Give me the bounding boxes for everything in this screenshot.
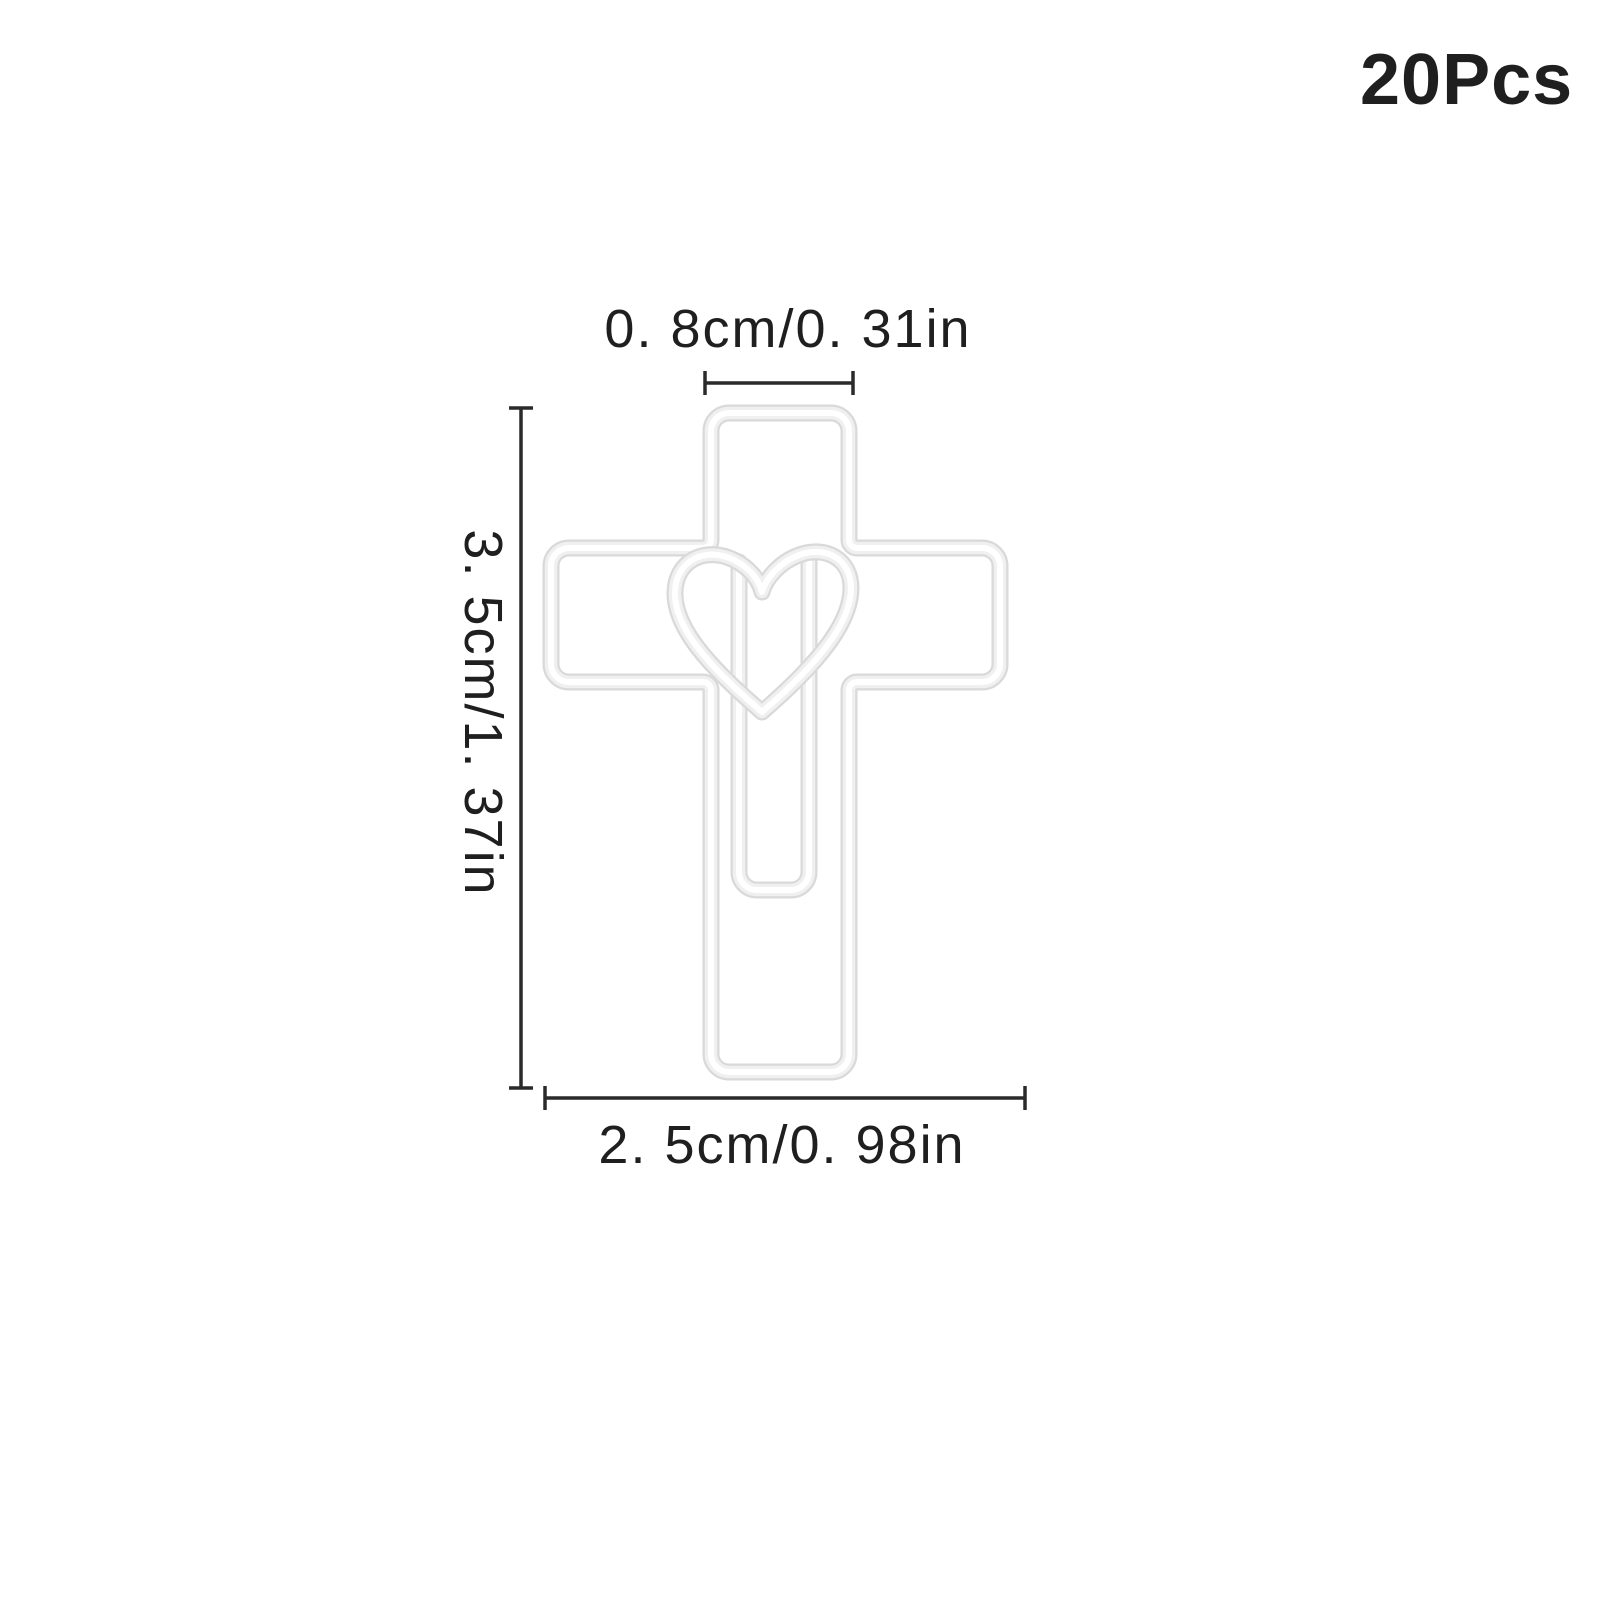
inner-loop-wire [739,562,809,890]
quantity-badge: 20Pcs [1360,44,1573,116]
cross-outline-wire [551,413,1000,1072]
dimension-label-top-width: 0. 8cm/0. 31in [488,302,1088,356]
dimension-label-height: 3. 5cm/1. 37in [456,413,510,1013]
cross-heart-paperclip-graphic [0,0,1600,1600]
product-dimension-diagram: 20Pcs 0. 8cm/0. 31in 3. 5cm/1. 37in 2. 5… [0,0,1600,1600]
dimension-label-bottom-width: 2. 5cm/0. 98in [482,1118,1082,1172]
dimension-lines [509,371,1025,1110]
